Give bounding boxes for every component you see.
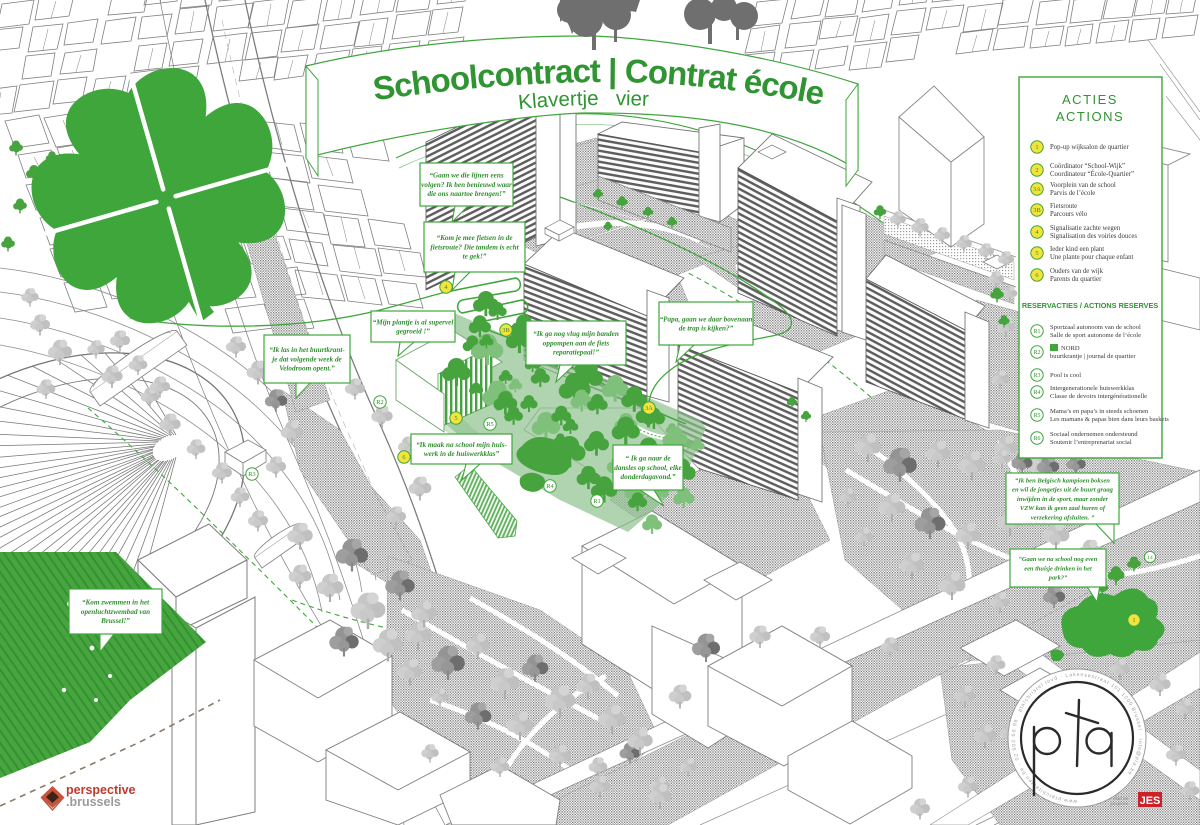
svg-text:“Ik maak na school mijn huis-: “Ik maak na school mijn huis-: [416, 441, 507, 449]
svg-text:R5: R5: [1034, 413, 1041, 419]
svg-text:Coördinator “School-Wijk”: Coördinator “School-Wijk”: [1050, 163, 1125, 170]
svg-text:een thuisje drinken in het: een thuisje drinken in het: [1024, 565, 1092, 572]
svg-text:Coordinateur “École-Quartier”: Coordinateur “École-Quartier”: [1050, 170, 1134, 178]
svg-text:Parents du quartier: Parents du quartier: [1050, 276, 1102, 283]
svg-text:Klavertje vier: Klavertje vier: [517, 87, 649, 114]
svg-text:5: 5: [454, 415, 457, 422]
svg-text:Signalisation des voiries douc: Signalisation des voiries douces: [1050, 233, 1137, 240]
svg-text:je dat volgende week de: je dat volgende week de: [271, 355, 342, 363]
svg-text:Parcours vélo: Parcours vélo: [1050, 211, 1088, 218]
svg-text:R6: R6: [1034, 436, 1041, 442]
svg-text:6: 6: [402, 454, 405, 461]
svg-text:RESERVACTIES / ACTIONS RESERVE: RESERVACTIES / ACTIONS RESERVES: [1022, 301, 1159, 310]
svg-text:NORD: NORD: [1061, 345, 1080, 352]
svg-text:“Papa, gaan we daar bovenaan: “Papa, gaan we daar bovenaan: [660, 315, 753, 323]
svg-text:ACTIONS: ACTIONS: [1056, 109, 1124, 124]
svg-text:Ieder kind een plant: Ieder kind een plant: [1050, 246, 1104, 253]
svg-text:Mama’s en papa’s in steeds sch: Mama’s en papa’s in steeds schoenen: [1050, 408, 1149, 415]
svg-text:verzekering afsluiten. ”: verzekering afsluiten. ”: [1031, 514, 1095, 521]
svg-text:Soutenir l’entreprenariat soci: Soutenir l’entreprenariat social: [1050, 439, 1132, 446]
svg-text:openluchtzwembad van: openluchtzwembad van: [81, 608, 150, 616]
svg-text:“Kom je mee fietsen in de: “Kom je mee fietsen in de: [436, 234, 513, 242]
svg-text:Signalisatie zachte wegen: Signalisatie zachte wegen: [1050, 225, 1121, 232]
svg-text:“Ik ben Belgisch kampioen boks: “Ik ben Belgisch kampioen boksen: [1015, 478, 1110, 485]
svg-text:3A: 3A: [645, 405, 653, 412]
svg-text:gegroeid !”: gegroeid !”: [395, 328, 430, 336]
svg-text:jongeren: jongeren: [1109, 801, 1128, 806]
svg-text:1: 1: [1132, 617, 1135, 624]
svg-text:Les mamans & papas bien dans l: Les mamans & papas bien dans leurs baske…: [1050, 416, 1169, 423]
svg-text:R3: R3: [1034, 373, 1041, 379]
svg-text:park?”: park?”: [1048, 575, 1068, 582]
svg-text:die ons naartoe brengen!”: die ons naartoe brengen!”: [427, 190, 505, 198]
svg-text:de trap is kijken?”: de trap is kijken?”: [679, 325, 734, 333]
svg-text:R4: R4: [1034, 390, 1041, 396]
svg-text:Sociaal ondernemen ondersteund: Sociaal ondernemen ondersteund: [1050, 431, 1138, 438]
svg-text:14: 14: [1147, 555, 1153, 561]
svg-text:VZW kan ik geen zaal huren of: VZW kan ik geen zaal huren of: [1020, 505, 1106, 512]
svg-text:Velodroom opent.”: Velodroom opent.”: [279, 365, 335, 373]
svg-text:Sportzaal autonoom van de scho: Sportzaal autonoom van de school: [1050, 324, 1141, 331]
svg-text:werk in de huiswerkklas”: werk in de huiswerkklas”: [424, 450, 500, 458]
svg-text:dansles op school, elke: dansles op school, elke: [614, 464, 682, 472]
svg-text:ACTIES: ACTIES: [1062, 92, 1118, 107]
svg-text:Une plante pour chaque enfant: Une plante pour chaque enfant: [1050, 254, 1134, 261]
svg-text:Brussel!”: Brussel!”: [100, 617, 130, 625]
svg-text:Pool is cool: Pool is cool: [1050, 372, 1081, 379]
svg-text:buurtkrantje | journal de quar: buurtkrantje | journal de quartier: [1050, 353, 1136, 360]
svg-text:3B: 3B: [1033, 207, 1040, 214]
svg-text:R1: R1: [593, 498, 600, 505]
svg-text:“Ik las in het buurtkrant-: “Ik las in het buurtkrant-: [269, 346, 345, 354]
svg-text:3B: 3B: [502, 327, 509, 334]
svg-text:fietsroute? Die tandem is echt: fietsroute? Die tandem is echt: [430, 243, 519, 251]
svg-text:R2: R2: [376, 399, 383, 406]
svg-text:JES: JES: [1140, 795, 1161, 807]
svg-text:Fietsroute: Fietsroute: [1050, 203, 1077, 210]
svg-text:6: 6: [1035, 272, 1038, 279]
svg-text:“Kom zwemmen in het: “Kom zwemmen in het: [82, 599, 150, 607]
svg-text:“Gaan we die lijnen eens: “Gaan we die lijnen eens: [429, 172, 503, 180]
svg-text:Classe de devoirs intergénérat: Classe de devoirs intergénérationelle: [1050, 393, 1147, 400]
svg-text:R1: R1: [1034, 329, 1041, 335]
svg-text:“Ik ga nog vlug mijn banden: “Ik ga nog vlug mijn banden: [533, 330, 619, 338]
svg-text:Voorplein van de school: Voorplein van de school: [1050, 182, 1116, 189]
svg-text:Parvis de l’école: Parvis de l’école: [1050, 190, 1095, 197]
svg-text:3A: 3A: [1033, 186, 1041, 193]
svg-text:en wil de jongetjes uit de buu: en wil de jongetjes uit de buurt graag: [1012, 487, 1114, 494]
svg-text:“Gaan we na school nog even: “Gaan we na school nog even: [1019, 556, 1098, 563]
svg-text:reparatiepaal!”: reparatiepaal!”: [553, 349, 599, 357]
svg-text:R5: R5: [486, 421, 493, 428]
svg-text:donderdagavond.”: donderdagavond.”: [621, 473, 676, 481]
svg-text:5: 5: [1035, 250, 1038, 257]
svg-text:Salle de sport autonome de l’é: Salle de sport autonome de l’école: [1050, 332, 1141, 339]
svg-text:Ouders van de wijk: Ouders van de wijk: [1050, 268, 1104, 275]
svg-text:Intergenerationele huiswerkkla: Intergenerationele huiswerkklas: [1050, 385, 1135, 392]
svg-text:R2: R2: [1034, 350, 1041, 356]
svg-text:R4: R4: [546, 483, 554, 490]
svg-text:2: 2: [1035, 167, 1038, 174]
svg-text:te gek!”: te gek!”: [463, 253, 487, 261]
svg-text:“Mijn plantje is al supervel: “Mijn plantje is al supervel: [373, 318, 454, 326]
svg-text:1: 1: [1035, 144, 1038, 151]
svg-text:volgen? Ik ben benieuwd waar: volgen? Ik ben benieuwd waar: [421, 181, 512, 189]
svg-text:R3: R3: [248, 471, 255, 478]
svg-text:.brussels: .brussels: [66, 795, 121, 809]
svg-text:inwijden in de sport, maar zon: inwijden in de sport, maar zonder: [1017, 496, 1109, 503]
svg-text:oppompen aan de fiets: oppompen aan de fiets: [543, 339, 610, 347]
svg-text:Pop-up wijksalon de quartier: Pop-up wijksalon de quartier: [1050, 144, 1129, 151]
svg-text:“ Ik ga naar de: “ Ik ga naar de: [625, 455, 671, 463]
